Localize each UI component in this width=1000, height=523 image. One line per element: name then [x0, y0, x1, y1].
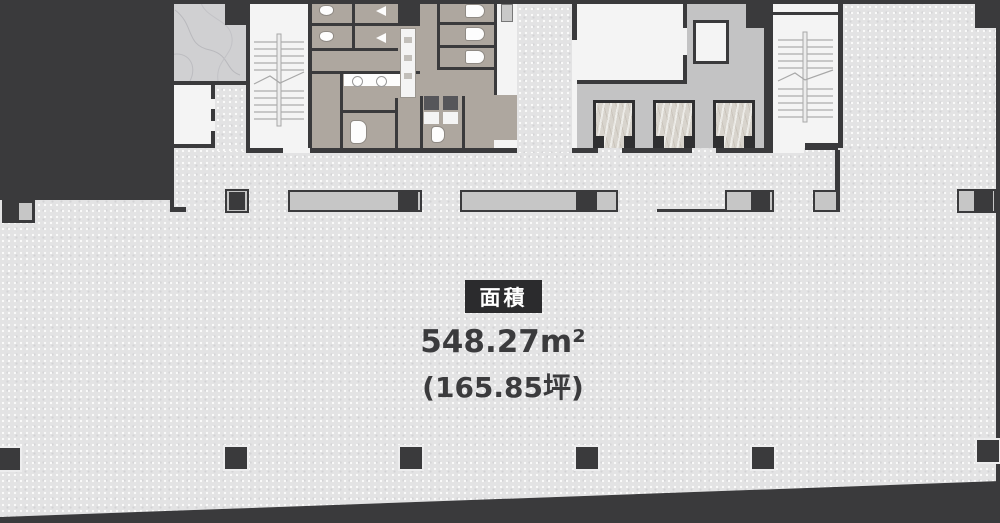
wall-segment [838, 0, 843, 148]
low-partition [725, 190, 774, 212]
column-box [225, 189, 249, 213]
door-opening [773, 148, 804, 153]
low-partition [288, 190, 422, 212]
column-box [2, 200, 35, 223]
shaft-room [693, 20, 729, 64]
elevator-cab [593, 100, 635, 148]
wall-segment [343, 110, 398, 113]
wall-segment [764, 0, 773, 148]
stall-fixture-icon [376, 33, 386, 43]
column [225, 447, 247, 469]
elevator-cab [713, 100, 755, 148]
toilet-icon [465, 4, 485, 18]
column [400, 447, 422, 469]
wall-segment [170, 144, 215, 148]
wall-segment [437, 67, 495, 70]
stall-floor [424, 112, 439, 124]
wall-segment [246, 148, 283, 153]
duct-icon [424, 96, 439, 110]
low-partition [957, 189, 996, 213]
wall-segment [246, 0, 250, 148]
wall-segment [437, 45, 495, 48]
area-label-text: 面積 [480, 282, 528, 312]
machine-room [577, 4, 683, 80]
wall-segment [437, 0, 440, 70]
toilet-icon [465, 27, 485, 41]
sink-counter [344, 74, 400, 86]
wall-segment [622, 148, 692, 153]
stall-fixture-icon [376, 6, 386, 16]
right-border [996, 28, 1000, 484]
wall-segment [716, 148, 773, 153]
area-tsubo-text: (165.85坪) [363, 366, 643, 406]
urinal-icon [319, 31, 334, 42]
column [0, 448, 20, 470]
stairwell-right [773, 15, 838, 148]
wall-segment [211, 85, 215, 99]
stall-floor [443, 112, 458, 124]
wall-segment [312, 23, 398, 26]
toilet-icon [465, 50, 485, 64]
low-partition [813, 190, 838, 212]
wall-segment [462, 96, 465, 150]
wall-segment [572, 0, 577, 40]
wall-segment [211, 109, 215, 121]
wall-segment [170, 81, 246, 85]
urinal-icon [319, 5, 334, 16]
stair-treads [773, 15, 838, 148]
column [576, 447, 598, 469]
area-label-badge: 面積 [465, 280, 542, 313]
elevator-cab [653, 100, 695, 148]
partition-line [657, 209, 725, 212]
top-border [170, 0, 997, 4]
area-sqm-text: 548.27m² [363, 324, 643, 360]
wall-segment [437, 22, 495, 25]
wall-segment [395, 98, 398, 150]
duct-icon [443, 96, 458, 110]
corner-block [975, 0, 1000, 28]
column [977, 440, 999, 462]
pipe-shaft [400, 28, 416, 98]
stairwell-left [250, 4, 308, 148]
small-room [174, 85, 211, 144]
column [752, 447, 774, 469]
wall-segment [170, 207, 186, 212]
wall-segment [211, 131, 215, 148]
door-opening [283, 148, 310, 153]
toilet-icon [350, 120, 367, 144]
corridor-pocket-left [215, 81, 246, 151]
vanity-counter [497, 0, 517, 95]
wall-segment [312, 48, 398, 51]
lobby-area-right [843, 4, 996, 150]
wall-segment [310, 148, 517, 153]
toilet-icon [431, 126, 445, 143]
wall-segment [805, 143, 838, 150]
core-block [0, 0, 170, 200]
wall-segment [308, 0, 312, 148]
low-partition [460, 190, 618, 212]
counter-white [494, 140, 517, 148]
wall-segment [420, 96, 423, 150]
stair-treads [250, 4, 308, 148]
floor-plan: 面積 548.27m² (165.85坪) [0, 0, 1000, 523]
wall-segment [572, 148, 598, 153]
wall-segment [352, 0, 355, 51]
wall-segment [170, 0, 174, 212]
corridor-pocket-center [517, 0, 572, 153]
